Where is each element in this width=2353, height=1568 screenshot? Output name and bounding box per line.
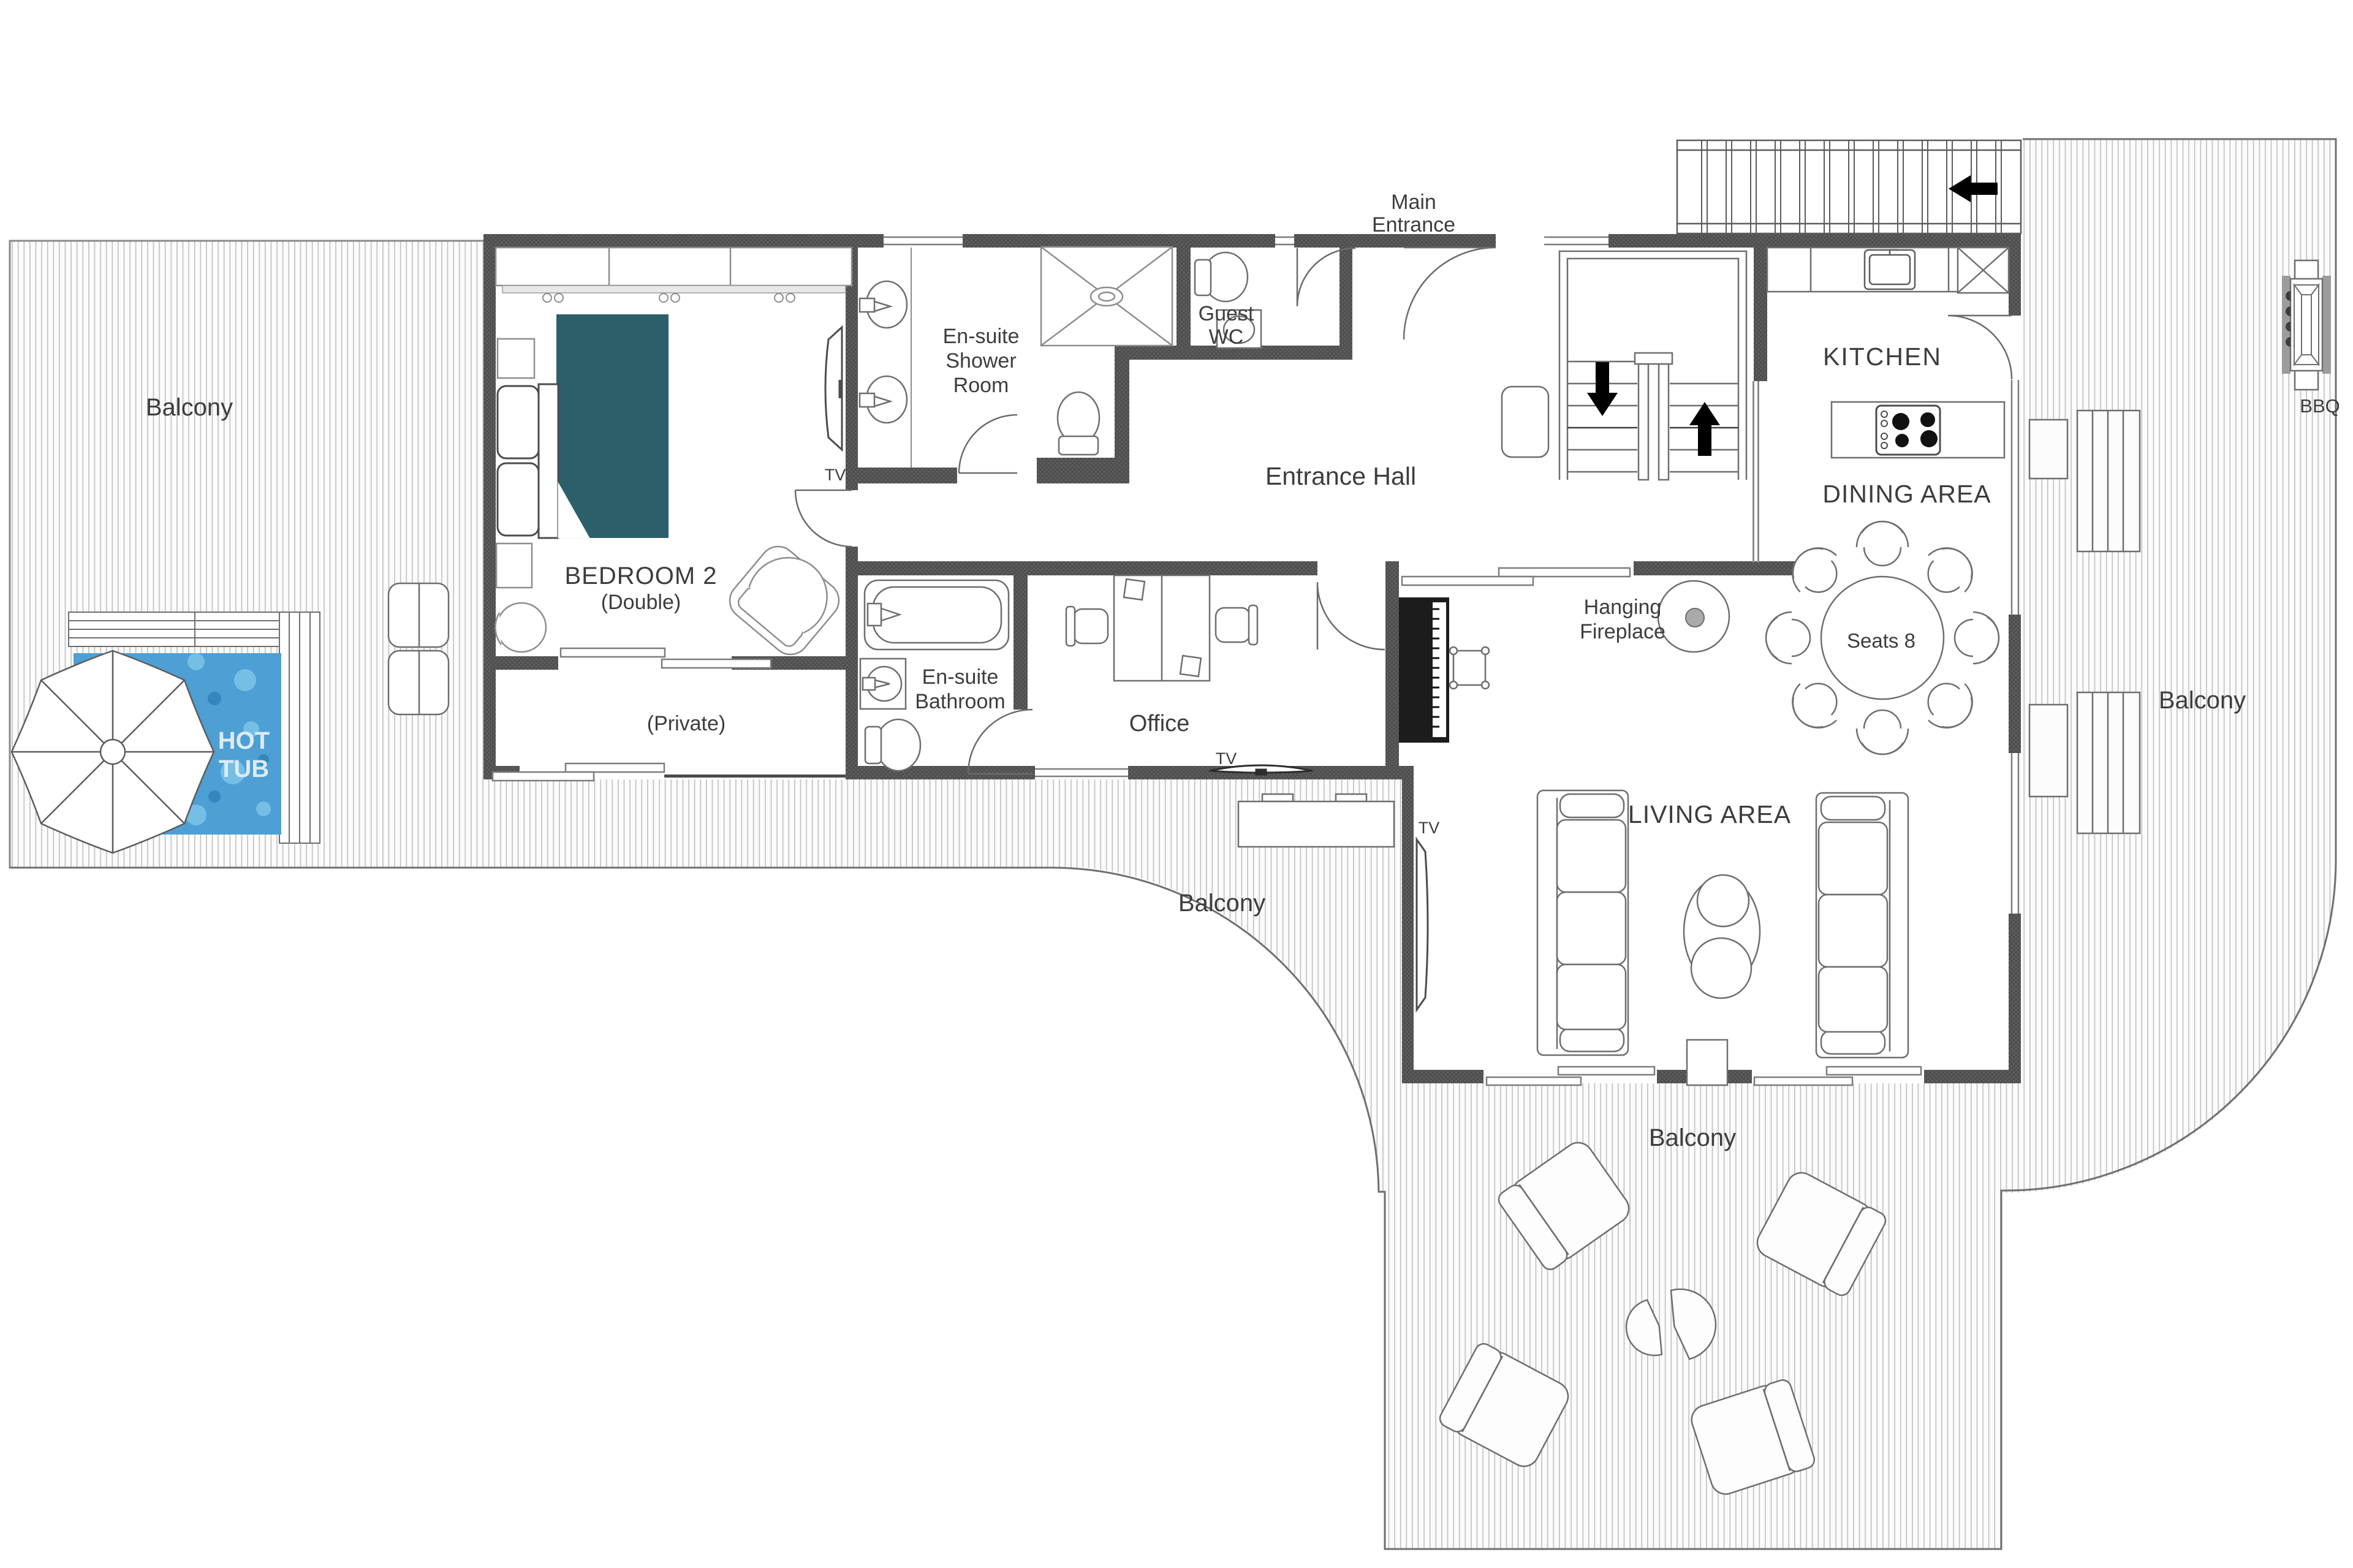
svg-text:HOT: HOT <box>218 727 270 754</box>
svg-text:Balcony: Balcony <box>1178 890 1265 917</box>
svg-text:Main: Main <box>1391 191 1436 214</box>
svg-text:Bathroom: Bathroom <box>915 690 1005 713</box>
svg-text:Entrance: Entrance <box>1372 213 1455 237</box>
svg-text:Hanging: Hanging <box>1584 596 1662 619</box>
svg-text:TV: TV <box>1419 819 1440 837</box>
svg-text:Balcony: Balcony <box>1649 1124 1736 1151</box>
svg-text:(Double): (Double) <box>601 591 681 614</box>
svg-text:Seats 8: Seats 8 <box>1847 629 1915 652</box>
svg-text:Shower: Shower <box>945 349 1016 373</box>
svg-text:En-suite: En-suite <box>922 665 999 689</box>
svg-text:Balcony: Balcony <box>146 394 233 421</box>
svg-text:LIVING AREA: LIVING AREA <box>1628 800 1791 828</box>
svg-text:Balcony: Balcony <box>2159 687 2246 714</box>
svg-text:Entrance Hall: Entrance Hall <box>1265 462 1416 490</box>
svg-text:TV: TV <box>825 466 846 484</box>
svg-text:BBQ: BBQ <box>2300 395 2340 417</box>
svg-text:TV: TV <box>1216 749 1237 768</box>
svg-text:DINING AREA: DINING AREA <box>1822 480 1991 508</box>
svg-text:Guest: Guest <box>1199 302 1254 325</box>
svg-text:En-suite: En-suite <box>943 325 1020 348</box>
svg-text:Fireplace: Fireplace <box>1580 620 1665 643</box>
svg-text:(Private): (Private) <box>647 712 726 735</box>
svg-text:TUB: TUB <box>219 756 269 782</box>
svg-text:KITCHEN: KITCHEN <box>1823 343 1942 371</box>
svg-text:BEDROOM 2: BEDROOM 2 <box>564 562 717 589</box>
svg-text:Office: Office <box>1129 711 1190 737</box>
svg-text:WC: WC <box>1209 325 1244 349</box>
svg-text:Room: Room <box>953 374 1009 397</box>
